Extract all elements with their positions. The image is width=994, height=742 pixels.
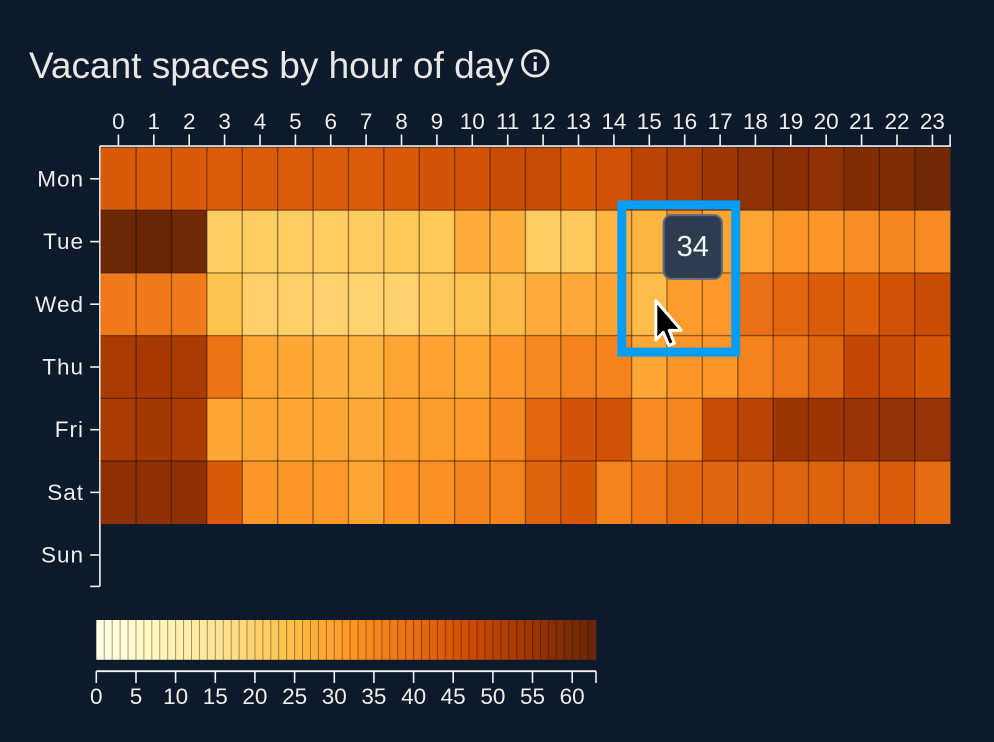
svg-text:20: 20	[242, 684, 267, 709]
svg-text:2: 2	[183, 109, 196, 134]
svg-text:Sun: Sun	[41, 543, 84, 568]
svg-text:Wed: Wed	[35, 292, 84, 317]
svg-text:0: 0	[90, 684, 103, 709]
svg-text:10: 10	[163, 684, 188, 709]
svg-text:3: 3	[218, 109, 231, 134]
svg-text:7: 7	[360, 109, 373, 134]
svg-text:Fri: Fri	[55, 417, 84, 442]
svg-text:60: 60	[560, 684, 585, 709]
svg-text:19: 19	[778, 109, 803, 134]
svg-text:1: 1	[148, 109, 161, 134]
svg-text:50: 50	[480, 684, 505, 709]
svg-text:30: 30	[322, 684, 347, 709]
svg-text:5: 5	[130, 684, 143, 709]
svg-text:34: 34	[677, 231, 709, 263]
svg-text:4: 4	[254, 109, 267, 134]
svg-text:16: 16	[672, 109, 697, 134]
svg-text:5: 5	[289, 109, 302, 134]
svg-text:11: 11	[496, 109, 519, 134]
svg-text:45: 45	[441, 684, 466, 709]
svg-text:Vacant spaces by hour of day: Vacant spaces by hour of day	[29, 45, 514, 86]
svg-text:6: 6	[324, 109, 337, 134]
svg-text:17: 17	[708, 109, 733, 134]
svg-text:21: 21	[849, 109, 874, 134]
svg-text:15: 15	[203, 684, 228, 709]
svg-text:22: 22	[884, 109, 909, 134]
svg-text:20: 20	[814, 109, 839, 134]
svg-text:12: 12	[531, 109, 556, 134]
svg-text:23: 23	[920, 109, 945, 134]
svg-text:0: 0	[112, 109, 125, 134]
svg-text:14: 14	[601, 109, 626, 134]
svg-text:10: 10	[460, 109, 485, 134]
svg-text:40: 40	[401, 684, 426, 709]
svg-text:Mon: Mon	[37, 166, 84, 191]
svg-text:Tue: Tue	[43, 229, 84, 254]
svg-text:25: 25	[282, 684, 307, 709]
svg-text:55: 55	[520, 684, 545, 709]
svg-text:Thu: Thu	[42, 355, 84, 380]
svg-text:9: 9	[431, 109, 444, 134]
svg-text:Sat: Sat	[47, 480, 84, 505]
svg-text:18: 18	[743, 109, 768, 134]
svg-text:8: 8	[395, 109, 408, 134]
svg-text:13: 13	[566, 109, 591, 134]
svg-text:15: 15	[637, 109, 662, 134]
svg-text:35: 35	[361, 684, 386, 709]
